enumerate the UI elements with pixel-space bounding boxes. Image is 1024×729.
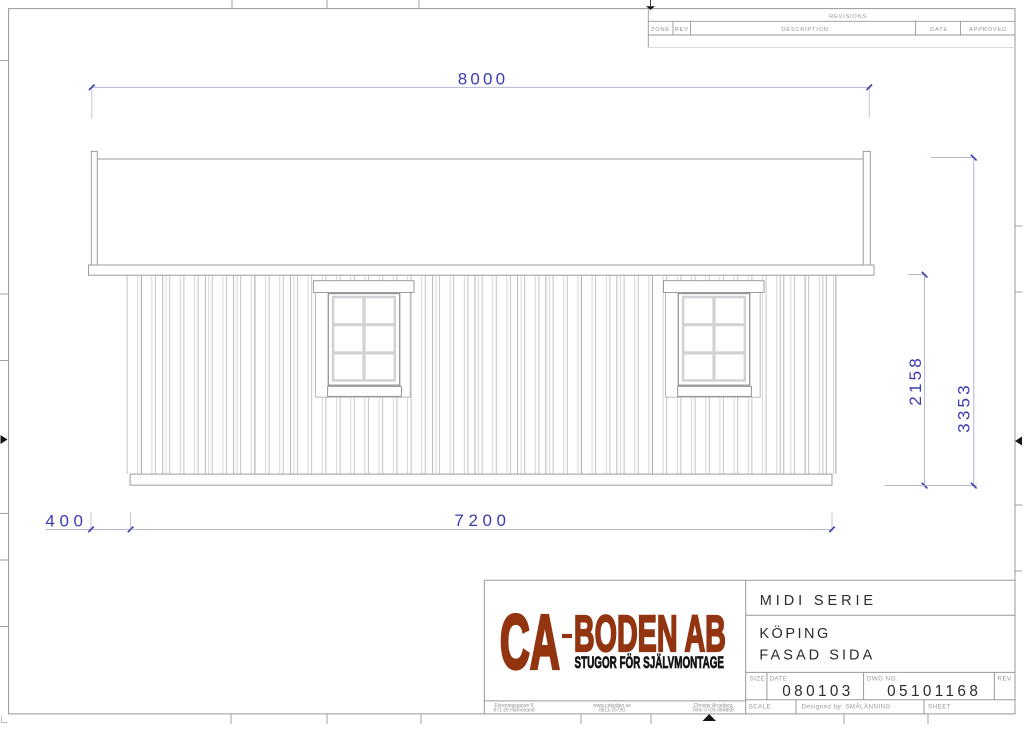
svg-text:080103: 080103	[782, 683, 853, 700]
svg-text:MIDI SERIE: MIDI SERIE	[760, 593, 877, 609]
svg-text:ZONE: ZONE	[651, 27, 670, 33]
svg-text:3353: 3353	[955, 382, 974, 433]
svg-text:8000: 8000	[458, 69, 509, 88]
svg-text:FASAD SIDA: FASAD SIDA	[759, 648, 875, 664]
svg-text:SHEET: SHEET	[928, 704, 951, 711]
svg-text:REV: REV	[998, 675, 1013, 682]
svg-text:2158: 2158	[906, 355, 925, 406]
svg-text:7200: 7200	[454, 511, 510, 530]
svg-text:DATE: DATE	[930, 27, 948, 33]
svg-text:Designed by: SMÅLÄNNING: Designed by: SMÅLÄNNING	[802, 702, 891, 711]
svg-text:REV: REV	[675, 27, 689, 33]
svg-text:CA: CA	[500, 600, 560, 686]
svg-text:871 39 Härnösand: 871 39 Härnösand	[493, 708, 534, 714]
svg-text:Telnr 0705-984858: Telnr 0705-984858	[692, 708, 734, 714]
svg-text:05101168: 05101168	[887, 683, 981, 700]
svg-text:DWG NO.: DWG NO.	[867, 675, 898, 682]
svg-text:KÖPING: KÖPING	[759, 624, 830, 642]
svg-text:STUGOR FÖR SJÄLVMONTAGE: STUGOR FÖR SJÄLVMONTAGE	[575, 654, 725, 673]
svg-text:0611-25790: 0611-25790	[599, 708, 626, 714]
svg-text:DESCRIPTION: DESCRIPTION	[781, 27, 828, 33]
svg-text:DATE: DATE	[770, 675, 788, 682]
svg-text:400: 400	[45, 512, 87, 531]
svg-text:SCALE: SCALE	[749, 704, 772, 711]
svg-text:REVISIONS: REVISIONS	[829, 14, 867, 20]
svg-text:SIZE: SIZE	[750, 675, 766, 682]
svg-text:APPROVED: APPROVED	[969, 27, 1007, 33]
